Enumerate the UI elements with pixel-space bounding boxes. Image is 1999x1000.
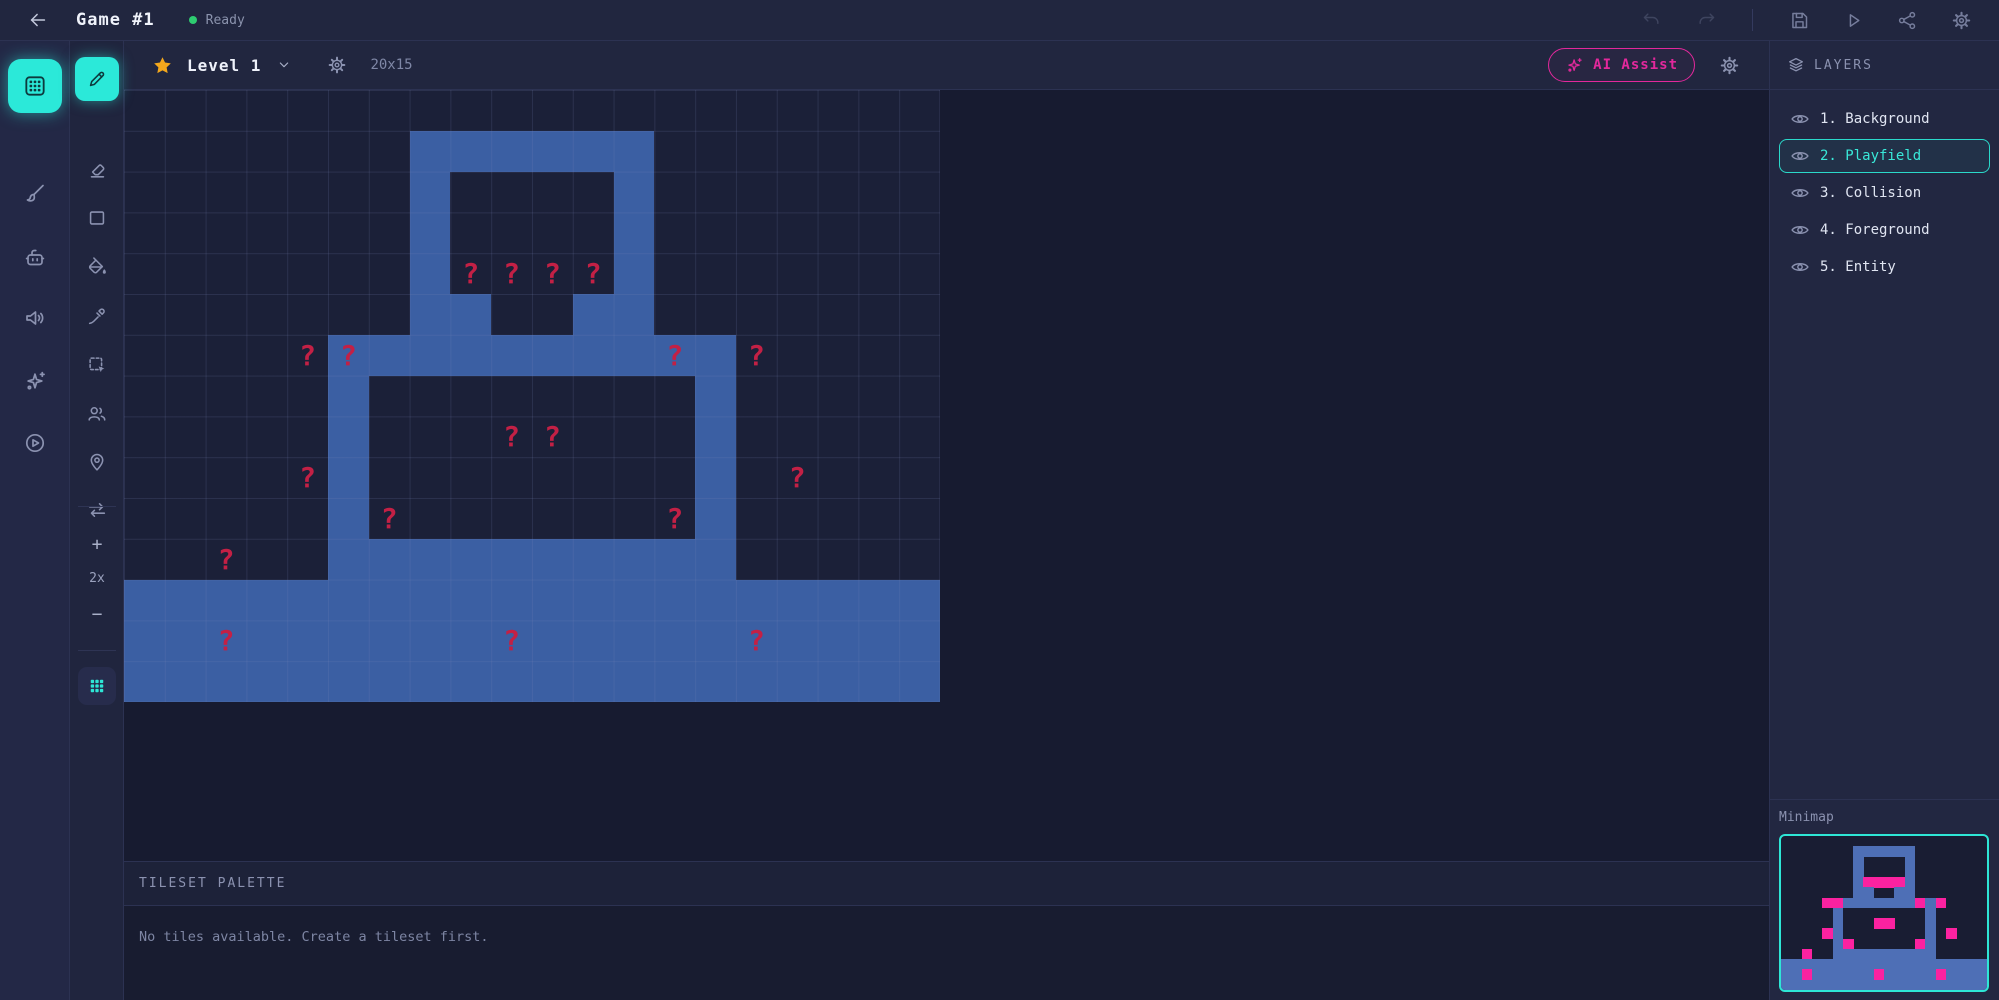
- select-tool-button[interactable]: [70, 352, 124, 378]
- play-circle-icon: [23, 431, 47, 455]
- minimap-tile: [1853, 867, 1864, 878]
- minimap-tile: [1863, 846, 1874, 857]
- status-text: Ready: [206, 13, 245, 28]
- tile-cell[interactable]: [124, 661, 165, 702]
- minimap-tile: [1853, 877, 1864, 888]
- back-button[interactable]: [26, 8, 50, 32]
- minimap-tile: [1894, 959, 1905, 970]
- grid-size-label: 20x15: [370, 57, 412, 73]
- minimap-tile: [1863, 959, 1874, 970]
- robot-mode-button[interactable]: [0, 245, 70, 271]
- minimap-tile: [1822, 959, 1833, 970]
- minimap-tile: [1884, 949, 1895, 960]
- minimap-tile: [1781, 959, 1792, 970]
- eyedropper-icon: [86, 305, 108, 327]
- eraser-tool-button[interactable]: [70, 156, 124, 182]
- minimap-tile: [1853, 959, 1864, 970]
- tile-cell[interactable]: [614, 539, 655, 580]
- minimap-label: Minimap: [1779, 810, 1990, 825]
- layer-item[interactable]: 4. Foreground: [1779, 213, 1990, 247]
- layer-item[interactable]: 1. Background: [1779, 102, 1990, 136]
- tile-cell[interactable]: [410, 620, 451, 661]
- tile-cell[interactable]: [654, 620, 695, 661]
- tiles-mode-button[interactable]: [8, 59, 62, 113]
- minimap-tile: [1843, 949, 1854, 960]
- tile-cell[interactable]: [899, 661, 940, 702]
- minimap-tile: [1853, 857, 1864, 868]
- zoom-out-button[interactable]: −: [70, 601, 124, 627]
- minimap-tile: [1905, 959, 1916, 970]
- rail-divider: [78, 506, 116, 507]
- speaker-icon: [23, 306, 47, 330]
- minimap-marker: [1946, 928, 1957, 939]
- minimap-tile: [1905, 949, 1916, 960]
- tile-cell[interactable]: [165, 661, 206, 702]
- minimap-tile: [1863, 980, 1874, 991]
- minimap-tile: [1843, 969, 1854, 980]
- tile-cell[interactable]: [695, 620, 736, 661]
- tile-cell[interactable]: [573, 661, 614, 702]
- tile-cell[interactable]: [287, 620, 328, 661]
- topbar: Game #1 Ready: [0, 0, 1999, 41]
- minimap-tile: [1843, 898, 1854, 909]
- minimap-marker: [1915, 898, 1926, 909]
- run-button[interactable]: [1841, 8, 1865, 32]
- tile-cell[interactable]: [532, 131, 573, 172]
- minimap-tile: [1822, 969, 1833, 980]
- question-mark-cell[interactable]: ?: [532, 416, 573, 457]
- canvas-area: ??????????????????: [124, 90, 1769, 861]
- minimap-tile: [1936, 980, 1947, 991]
- play-icon: [1843, 10, 1864, 31]
- tile-cell[interactable]: [450, 335, 491, 376]
- minimap-tile: [1833, 980, 1844, 991]
- minimap-tile: [1791, 959, 1802, 970]
- minimap-tile: [1863, 898, 1874, 909]
- tile-cell[interactable]: [818, 661, 859, 702]
- minimap-tile: [1781, 980, 1792, 991]
- tile-cell[interactable]: [328, 580, 369, 621]
- tile-cell[interactable]: [654, 661, 695, 702]
- tile-cell[interactable]: [410, 335, 451, 376]
- tile-cell[interactable]: [369, 661, 410, 702]
- grid-toggle-button[interactable]: [78, 667, 116, 705]
- minimap-marker: [1822, 898, 1833, 909]
- level-name[interactable]: Level 1: [187, 56, 261, 75]
- tile-cell[interactable]: [654, 539, 695, 580]
- minimap-tile: [1884, 980, 1895, 991]
- minimap-tile: [1874, 846, 1885, 857]
- tile-cell[interactable]: [328, 416, 369, 457]
- rectangle-tool-button[interactable]: [70, 205, 124, 231]
- question-mark-cell[interactable]: ?: [491, 620, 532, 661]
- tile-cell[interactable]: [246, 620, 287, 661]
- tile-cell[interactable]: [450, 131, 491, 172]
- tile-cell[interactable]: [410, 580, 451, 621]
- tile-cell[interactable]: [491, 661, 532, 702]
- minimap-tile: [1966, 980, 1977, 991]
- tile-cell[interactable]: [165, 580, 206, 621]
- settings-button[interactable]: [1949, 8, 1973, 32]
- tileset-palette-title: TILESET PALETTE: [139, 876, 286, 891]
- tile-cell[interactable]: [573, 335, 614, 376]
- minimap-tile: [1874, 949, 1885, 960]
- status-dot: [189, 16, 197, 24]
- eye-icon[interactable]: [1790, 109, 1810, 129]
- tile-grid-canvas[interactable]: ??????????????????: [124, 90, 940, 702]
- tile-cell[interactable]: [736, 661, 777, 702]
- minimap-tile: [1915, 949, 1926, 960]
- level-editor-app: { "topbar": { "title": "Game #1", "statu…: [0, 0, 1999, 1000]
- minimap-tile: [1946, 959, 1957, 970]
- minimap-marker: [1915, 939, 1926, 950]
- minimap-tile: [1956, 969, 1967, 980]
- minimap-tile: [1802, 980, 1813, 991]
- pencil-tool-button[interactable]: [75, 57, 119, 101]
- tile-cell[interactable]: [573, 580, 614, 621]
- tile-cell[interactable]: [614, 212, 655, 253]
- tile-cell[interactable]: [206, 580, 247, 621]
- minimap-tile: [1853, 898, 1864, 909]
- tile-cell[interactable]: [614, 294, 655, 335]
- robot-icon: [23, 246, 47, 270]
- tile-cell[interactable]: [369, 539, 410, 580]
- swap-tool-button[interactable]: [70, 497, 124, 523]
- tile-cell[interactable]: [573, 539, 614, 580]
- tile-cell[interactable]: [695, 416, 736, 457]
- tile-cell[interactable]: [450, 620, 491, 661]
- tile-cell[interactable]: [450, 661, 491, 702]
- tile-cell[interactable]: [614, 131, 655, 172]
- layer-item[interactable]: 3. Collision: [1779, 176, 1990, 210]
- layer-label: 4. Foreground: [1820, 222, 1930, 238]
- minimap-tile: [1812, 969, 1823, 980]
- tile-cell[interactable]: [614, 335, 655, 376]
- tile-cell[interactable]: [328, 376, 369, 417]
- minimap-tile: [1843, 959, 1854, 970]
- minimap-tile: [1956, 980, 1967, 991]
- tile-cell[interactable]: [206, 661, 247, 702]
- favorite-star-icon[interactable]: [152, 55, 173, 76]
- minimap-section: Minimap: [1770, 799, 1999, 1000]
- minimap-tile: [1905, 877, 1916, 888]
- question-mark-cell[interactable]: ?: [206, 539, 247, 580]
- tile-cell[interactable]: [695, 457, 736, 498]
- layer-label: 2. Playfield: [1820, 148, 1921, 164]
- ai-assist-button[interactable]: AI Assist: [1548, 48, 1695, 82]
- share-button[interactable]: [1895, 8, 1919, 32]
- eyedropper-tool-button[interactable]: [70, 303, 124, 329]
- tile-cell[interactable]: [410, 131, 451, 172]
- tile-cell[interactable]: [124, 580, 165, 621]
- minimap-tile: [1905, 857, 1916, 868]
- zoom-level: 2x: [70, 565, 124, 591]
- save-icon: [1789, 10, 1810, 31]
- minimap-tile: [1833, 918, 1844, 929]
- tile-cell[interactable]: [573, 131, 614, 172]
- question-mark-cell[interactable]: ?: [654, 335, 695, 376]
- tile-cell[interactable]: [328, 620, 369, 661]
- ai-assist-label: AI Assist: [1593, 57, 1678, 73]
- minimap-marker: [1833, 898, 1844, 909]
- eraser-icon: [86, 158, 108, 180]
- location-tool-button[interactable]: [70, 449, 124, 475]
- tile-cell[interactable]: [246, 661, 287, 702]
- question-mark-cell[interactable]: ?: [532, 253, 573, 294]
- minimap-tile: [1946, 980, 1957, 991]
- tile-cell[interactable]: [736, 580, 777, 621]
- layers-panel: LAYERS 1. Background2. Playfield3. Colli…: [1769, 41, 1999, 1000]
- tile-cell[interactable]: [695, 376, 736, 417]
- tile-cell[interactable]: [410, 661, 451, 702]
- minimap-tile: [1925, 959, 1936, 970]
- eye-icon[interactable]: [1790, 183, 1810, 203]
- minimap-tile: [1894, 898, 1905, 909]
- minimap-tile: [1977, 980, 1988, 991]
- minimap-tile: [1812, 980, 1823, 991]
- tile-cell[interactable]: [410, 294, 451, 335]
- tile-cell[interactable]: [450, 539, 491, 580]
- tile-cell[interactable]: [614, 580, 655, 621]
- tile-cell[interactable]: [287, 661, 328, 702]
- audio-mode-button[interactable]: [0, 305, 70, 331]
- tile-cell[interactable]: [695, 580, 736, 621]
- layer-item[interactable]: 2. Playfield: [1779, 139, 1990, 173]
- tile-cell[interactable]: [491, 539, 532, 580]
- tile-cell[interactable]: [491, 131, 532, 172]
- tile-cell[interactable]: [532, 539, 573, 580]
- tile-cell[interactable]: [818, 620, 859, 661]
- minimap-tile: [1925, 939, 1936, 950]
- layers-list: 1. Background2. Playfield3. Collision4. …: [1770, 90, 1999, 296]
- tile-cell[interactable]: [328, 457, 369, 498]
- redo-button[interactable]: [1694, 8, 1718, 32]
- question-mark-cell[interactable]: ?: [573, 253, 614, 294]
- tile-cell[interactable]: [654, 580, 695, 621]
- tile-cell[interactable]: [124, 620, 165, 661]
- question-mark-cell[interactable]: ?: [736, 335, 777, 376]
- tile-cell[interactable]: [369, 620, 410, 661]
- tile-cell[interactable]: [328, 539, 369, 580]
- tile-cell[interactable]: [410, 212, 451, 253]
- pin-icon: [86, 451, 108, 473]
- zoom-in-button[interactable]: +: [70, 531, 124, 557]
- question-mark-cell[interactable]: ?: [328, 335, 369, 376]
- minimap-marker: [1874, 969, 1885, 980]
- tile-cell[interactable]: [532, 335, 573, 376]
- minimap-marker: [1936, 969, 1947, 980]
- tile-cell[interactable]: [818, 580, 859, 621]
- tile-cell[interactable]: [369, 335, 410, 376]
- editor-settings-button[interactable]: [1717, 53, 1741, 77]
- tile-cell[interactable]: [491, 335, 532, 376]
- preview-mode-button[interactable]: [0, 430, 70, 456]
- center-column: Level 1 20x15 AI Assist: [124, 41, 1769, 1000]
- tile-cell[interactable]: [369, 580, 410, 621]
- minimap-tile: [1894, 887, 1905, 898]
- pencil-icon: [86, 68, 108, 90]
- minus-icon: −: [92, 604, 103, 625]
- minimap-tile: [1781, 969, 1792, 980]
- tile-cell[interactable]: [695, 335, 736, 376]
- paint-mode-button[interactable]: [0, 180, 70, 206]
- minimap-tile: [1966, 969, 1977, 980]
- question-mark-cell[interactable]: ?: [736, 620, 777, 661]
- tile-cell[interactable]: [777, 620, 818, 661]
- tile-cell[interactable]: [450, 580, 491, 621]
- minimap-tile: [1853, 969, 1864, 980]
- tile-cell[interactable]: [287, 580, 328, 621]
- tile-cell[interactable]: [858, 620, 899, 661]
- share-icon: [1897, 10, 1918, 31]
- minimap-tile: [1966, 959, 1977, 970]
- rail-divider-2: [78, 650, 116, 651]
- layers-icon: [1787, 56, 1805, 74]
- undo-icon: [1642, 10, 1662, 30]
- tile-cell[interactable]: [328, 661, 369, 702]
- level-toolbar-right: AI Assist: [1548, 48, 1741, 82]
- minimap-marker: [1802, 969, 1813, 980]
- layers-header: LAYERS: [1770, 41, 1999, 90]
- minimap-tile: [1925, 969, 1936, 980]
- minimap-tile: [1863, 969, 1874, 980]
- zoom-level-text: 2x: [89, 571, 105, 586]
- minimap-marker: [1863, 877, 1874, 888]
- swap-icon: [86, 499, 108, 521]
- minimap-marker: [1802, 949, 1813, 960]
- chevron-down-icon[interactable]: [276, 57, 292, 73]
- tile-cell[interactable]: [532, 661, 573, 702]
- topbar-actions: [1640, 8, 1973, 32]
- tile-cell[interactable]: [165, 620, 206, 661]
- minimap-tile: [1946, 969, 1957, 980]
- minimap[interactable]: [1779, 834, 1989, 992]
- eye-icon[interactable]: [1790, 257, 1810, 277]
- question-mark-cell[interactable]: ?: [491, 253, 532, 294]
- minimap-tile: [1905, 867, 1916, 878]
- tile-cell[interactable]: [899, 620, 940, 661]
- minimap-tile: [1936, 959, 1947, 970]
- level-toolbar: Level 1 20x15 AI Assist: [124, 41, 1769, 90]
- question-mark-cell[interactable]: ?: [369, 498, 410, 539]
- tile-cell[interactable]: [614, 620, 655, 661]
- question-mark-cell[interactable]: ?: [654, 498, 695, 539]
- question-mark-cell[interactable]: ?: [287, 335, 328, 376]
- minimap-tile: [1833, 949, 1844, 960]
- grid-icon: [22, 73, 48, 99]
- minimap-tile: [1894, 980, 1905, 991]
- tile-cell[interactable]: [410, 539, 451, 580]
- save-button[interactable]: [1787, 8, 1811, 32]
- rectangle-icon: [86, 207, 108, 229]
- minimap-tile: [1925, 918, 1936, 929]
- fill-tool-button[interactable]: [70, 254, 124, 280]
- minimap-marker: [1884, 918, 1895, 929]
- undo-button[interactable]: [1640, 8, 1664, 32]
- minimap-tile: [1884, 969, 1895, 980]
- gear-icon: [1951, 10, 1972, 31]
- ai-sparkle-icon: [1565, 56, 1584, 75]
- paint-bucket-icon: [86, 256, 108, 278]
- gear-icon: [327, 55, 347, 75]
- tile-cell[interactable]: [858, 580, 899, 621]
- minimap-tile: [1843, 980, 1854, 991]
- question-mark-cell[interactable]: ?: [206, 620, 247, 661]
- tile-cell[interactable]: [899, 580, 940, 621]
- entities-tool-button[interactable]: [70, 400, 124, 426]
- minimap-tile: [1894, 969, 1905, 980]
- level-settings-button[interactable]: [325, 53, 349, 77]
- minimap-tile: [1874, 898, 1885, 909]
- tile-cell[interactable]: [695, 661, 736, 702]
- tile-cell[interactable]: [614, 253, 655, 294]
- question-mark-cell[interactable]: ?: [777, 457, 818, 498]
- minimap-tile: [1884, 846, 1895, 857]
- question-mark-cell[interactable]: ?: [287, 457, 328, 498]
- tile-cell[interactable]: [695, 539, 736, 580]
- tile-cell[interactable]: [410, 253, 451, 294]
- grid-icon: [87, 676, 107, 696]
- tile-cell[interactable]: [858, 661, 899, 702]
- tile-cell[interactable]: [328, 498, 369, 539]
- users-icon: [86, 402, 108, 424]
- tile-cell[interactable]: [695, 498, 736, 539]
- minimap-marker: [1874, 918, 1885, 929]
- minimap-tile: [1894, 949, 1905, 960]
- minimap-tile: [1833, 928, 1844, 939]
- layer-item[interactable]: 5. Entity: [1779, 250, 1990, 284]
- minimap-tile: [1802, 959, 1813, 970]
- question-mark-cell[interactable]: ?: [450, 253, 491, 294]
- tile-cell[interactable]: [491, 580, 532, 621]
- minimap-marker: [1936, 898, 1947, 909]
- eye-icon[interactable]: [1790, 146, 1810, 166]
- tile-cell[interactable]: [532, 580, 573, 621]
- tile-cell[interactable]: [777, 661, 818, 702]
- minimap-tile: [1853, 887, 1864, 898]
- tile-cell[interactable]: [450, 294, 491, 335]
- minimap-marker: [1843, 939, 1854, 950]
- tile-cell[interactable]: [573, 294, 614, 335]
- brush-icon: [23, 181, 47, 205]
- minimap-marker: [1874, 877, 1885, 888]
- tool-rail: + 2x −: [70, 41, 124, 1000]
- tile-cell[interactable]: [246, 580, 287, 621]
- minimap-tile: [1925, 898, 1936, 909]
- minimap-marker: [1884, 877, 1895, 888]
- tile-cell[interactable]: [410, 172, 451, 213]
- minimap-tile: [1905, 887, 1916, 898]
- eye-icon[interactable]: [1790, 220, 1810, 240]
- ai-mode-button[interactable]: [0, 368, 70, 394]
- question-mark-cell[interactable]: ?: [491, 416, 532, 457]
- minimap-tile: [1874, 980, 1885, 991]
- topbar-divider: [1752, 9, 1753, 31]
- minimap-tile: [1905, 980, 1916, 991]
- minimap-tile: [1884, 898, 1895, 909]
- minimap-marker: [1822, 928, 1833, 939]
- sparkles-icon: [23, 369, 48, 394]
- layer-label: 5. Entity: [1820, 259, 1896, 275]
- tile-cell[interactable]: [777, 580, 818, 621]
- tile-cell[interactable]: [614, 172, 655, 213]
- tile-cell[interactable]: [614, 661, 655, 702]
- tile-cell[interactable]: [573, 620, 614, 661]
- tile-cell[interactable]: [532, 620, 573, 661]
- minimap-tile: [1956, 959, 1967, 970]
- minimap-tile: [1915, 980, 1926, 991]
- minimap-tile: [1833, 908, 1844, 919]
